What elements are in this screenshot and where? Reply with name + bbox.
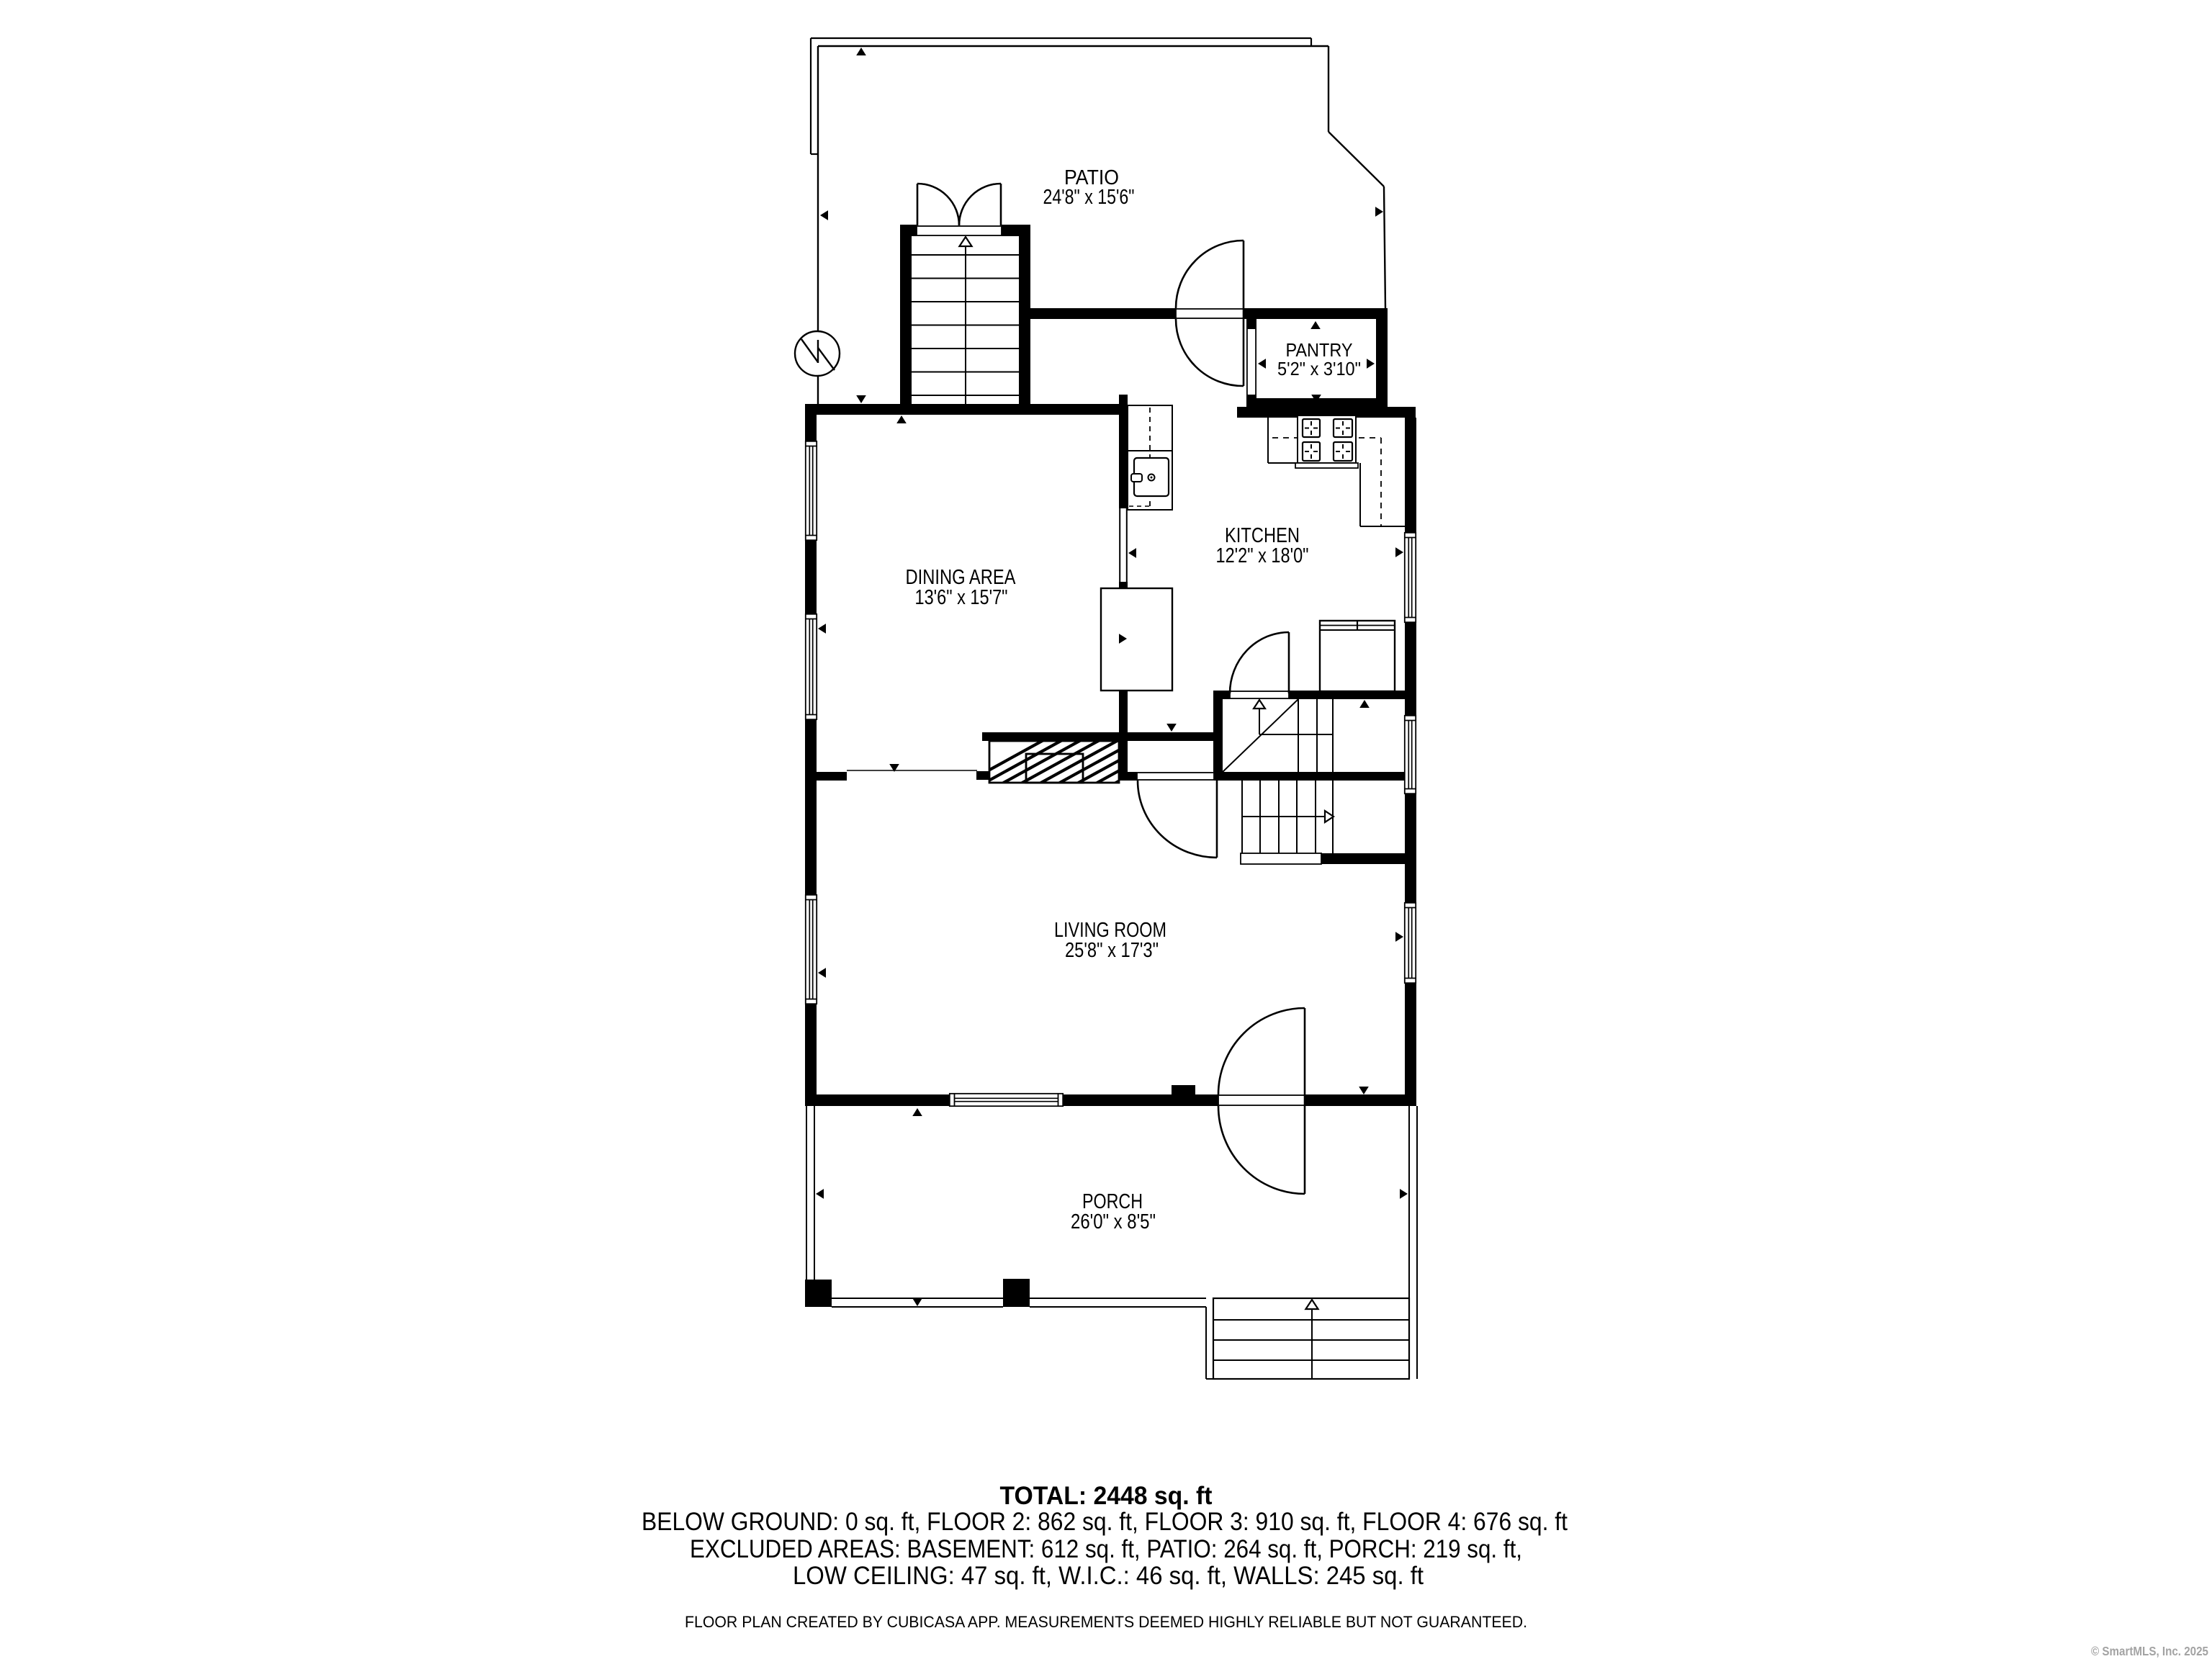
svg-text:FLOOR PLAN CREATED BY CUBICASA: FLOOR PLAN CREATED BY CUBICASA APP. MEAS… — [685, 1613, 1527, 1631]
svg-text:BELOW GROUND: 0 sq. ft, FLOOR: BELOW GROUND: 0 sq. ft, FLOOR 2: 862 sq.… — [642, 1508, 1568, 1536]
svg-text:5'2" x 3'10": 5'2" x 3'10" — [1277, 358, 1361, 379]
svg-text:LOW CEILING: 47 sq. ft, W.I.C.: LOW CEILING: 47 sq. ft, W.I.C.: 46 sq. f… — [793, 1562, 1424, 1590]
svg-text:© SmartMLS, Inc. 2025: © SmartMLS, Inc. 2025 — [2091, 1644, 2208, 1658]
svg-text:13'6" x 15'7": 13'6" x 15'7" — [915, 586, 1008, 609]
svg-text:12'2" x 18'0": 12'2" x 18'0" — [1216, 544, 1309, 567]
svg-text:26'0" x 8'5": 26'0" x 8'5" — [1071, 1210, 1156, 1233]
svg-text:25'8" x 17'3": 25'8" x 17'3" — [1065, 939, 1159, 962]
svg-text:24'8" x 15'6": 24'8" x 15'6" — [1043, 186, 1135, 209]
svg-text:TOTAL: 2448 sq. ft: TOTAL: 2448 sq. ft — [1000, 1482, 1213, 1510]
svg-text:EXCLUDED AREAS: BASEMENT: 612: EXCLUDED AREAS: BASEMENT: 612 sq. ft, PA… — [690, 1535, 1522, 1563]
